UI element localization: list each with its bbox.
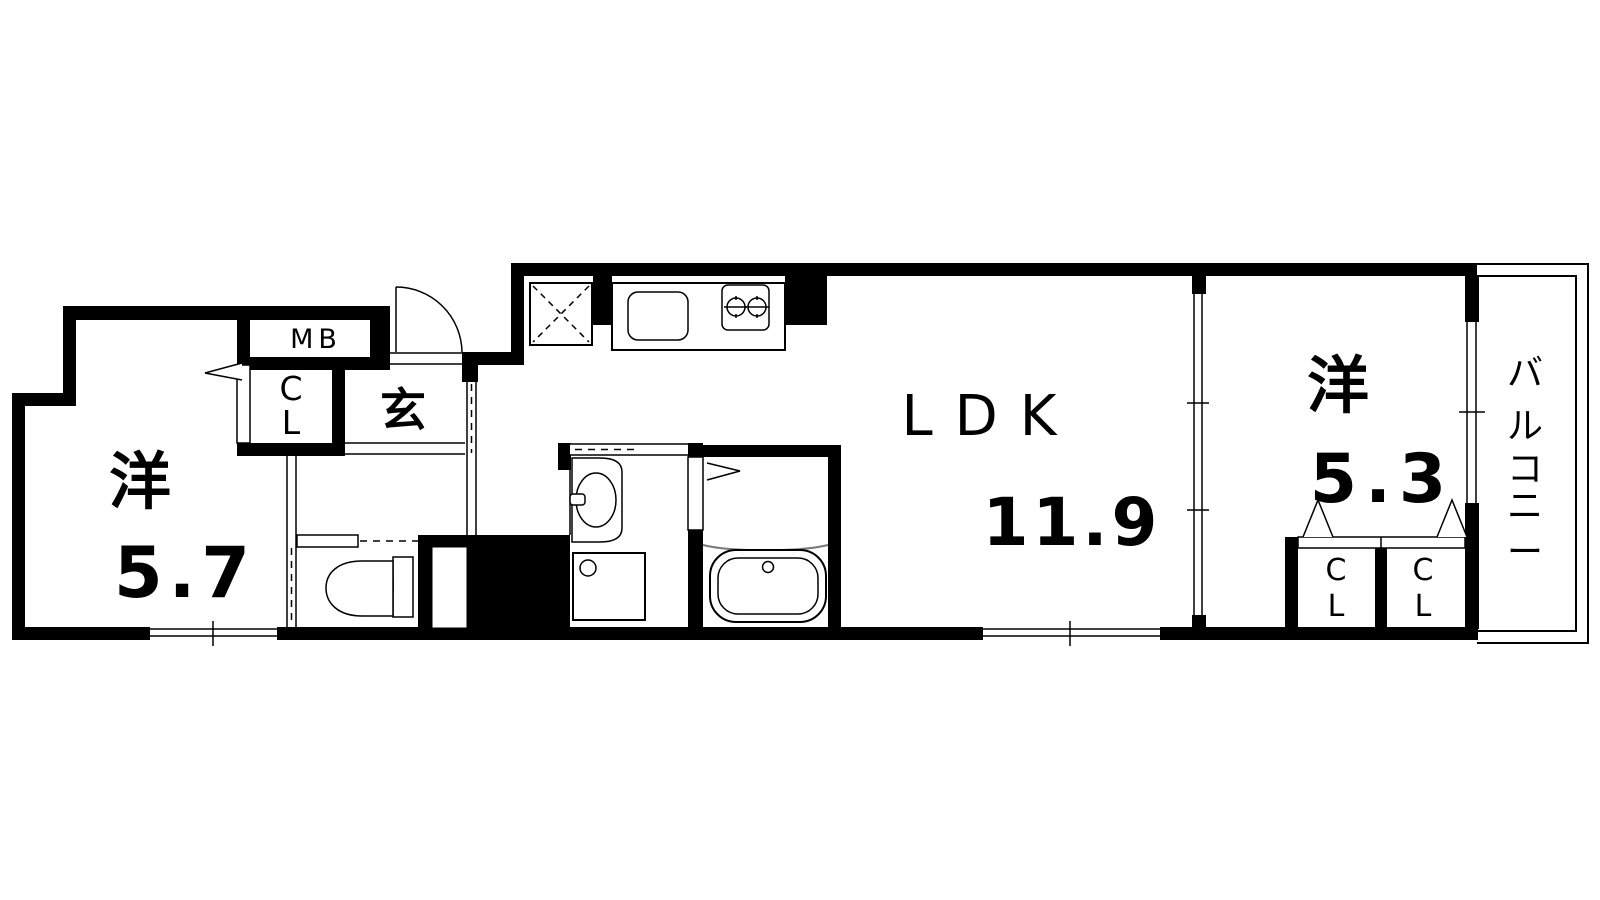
pipe-space (432, 547, 467, 628)
svg-text:ニ: ニ (1507, 486, 1543, 527)
stove-icon (722, 285, 769, 330)
svg-text:ル: ル (1507, 406, 1543, 447)
refrigerator-space-icon (530, 283, 592, 345)
closet-right-label-c: C (1413, 553, 1434, 588)
floor-plan-svg: 洋 5.7 LDK 11.9 洋 5.3 玄 MB C L C L C L バ … (0, 0, 1600, 900)
room-right-size: 5.3 (1310, 440, 1454, 519)
bathtub-icon (703, 545, 828, 622)
ldk-name: LDK (901, 384, 1078, 449)
room-left-name: 洋 (109, 445, 171, 518)
vanity-sink-icon (570, 458, 622, 542)
ldk-size: 11.9 (983, 484, 1162, 561)
entry-closet-label-l: L (282, 403, 301, 442)
closet-right-label-l: L (1415, 589, 1432, 624)
room-right-name: 洋 (1307, 349, 1369, 422)
svg-text:バ: バ (1507, 353, 1543, 394)
washing-machine-pan-icon (573, 553, 645, 620)
toilet-icon (326, 557, 413, 617)
closet-left-label-c: C (1326, 553, 1347, 588)
floor-plan: 洋 5.7 LDK 11.9 洋 5.3 玄 MB C L C L C L バ … (0, 0, 1600, 900)
kitchen-sink-icon (628, 292, 688, 340)
closet-left-label-l: L (1328, 589, 1345, 624)
meter-box-label: MB (290, 324, 342, 355)
room-left-size: 5.7 (114, 532, 256, 614)
svg-text:ー: ー (1507, 532, 1543, 573)
entrance-label: 玄 (380, 383, 426, 437)
balcony-label: バ ル コ ニ ー (1507, 353, 1543, 573)
svg-text:コ: コ (1507, 449, 1543, 490)
kitchen-counter-icon (612, 283, 785, 350)
